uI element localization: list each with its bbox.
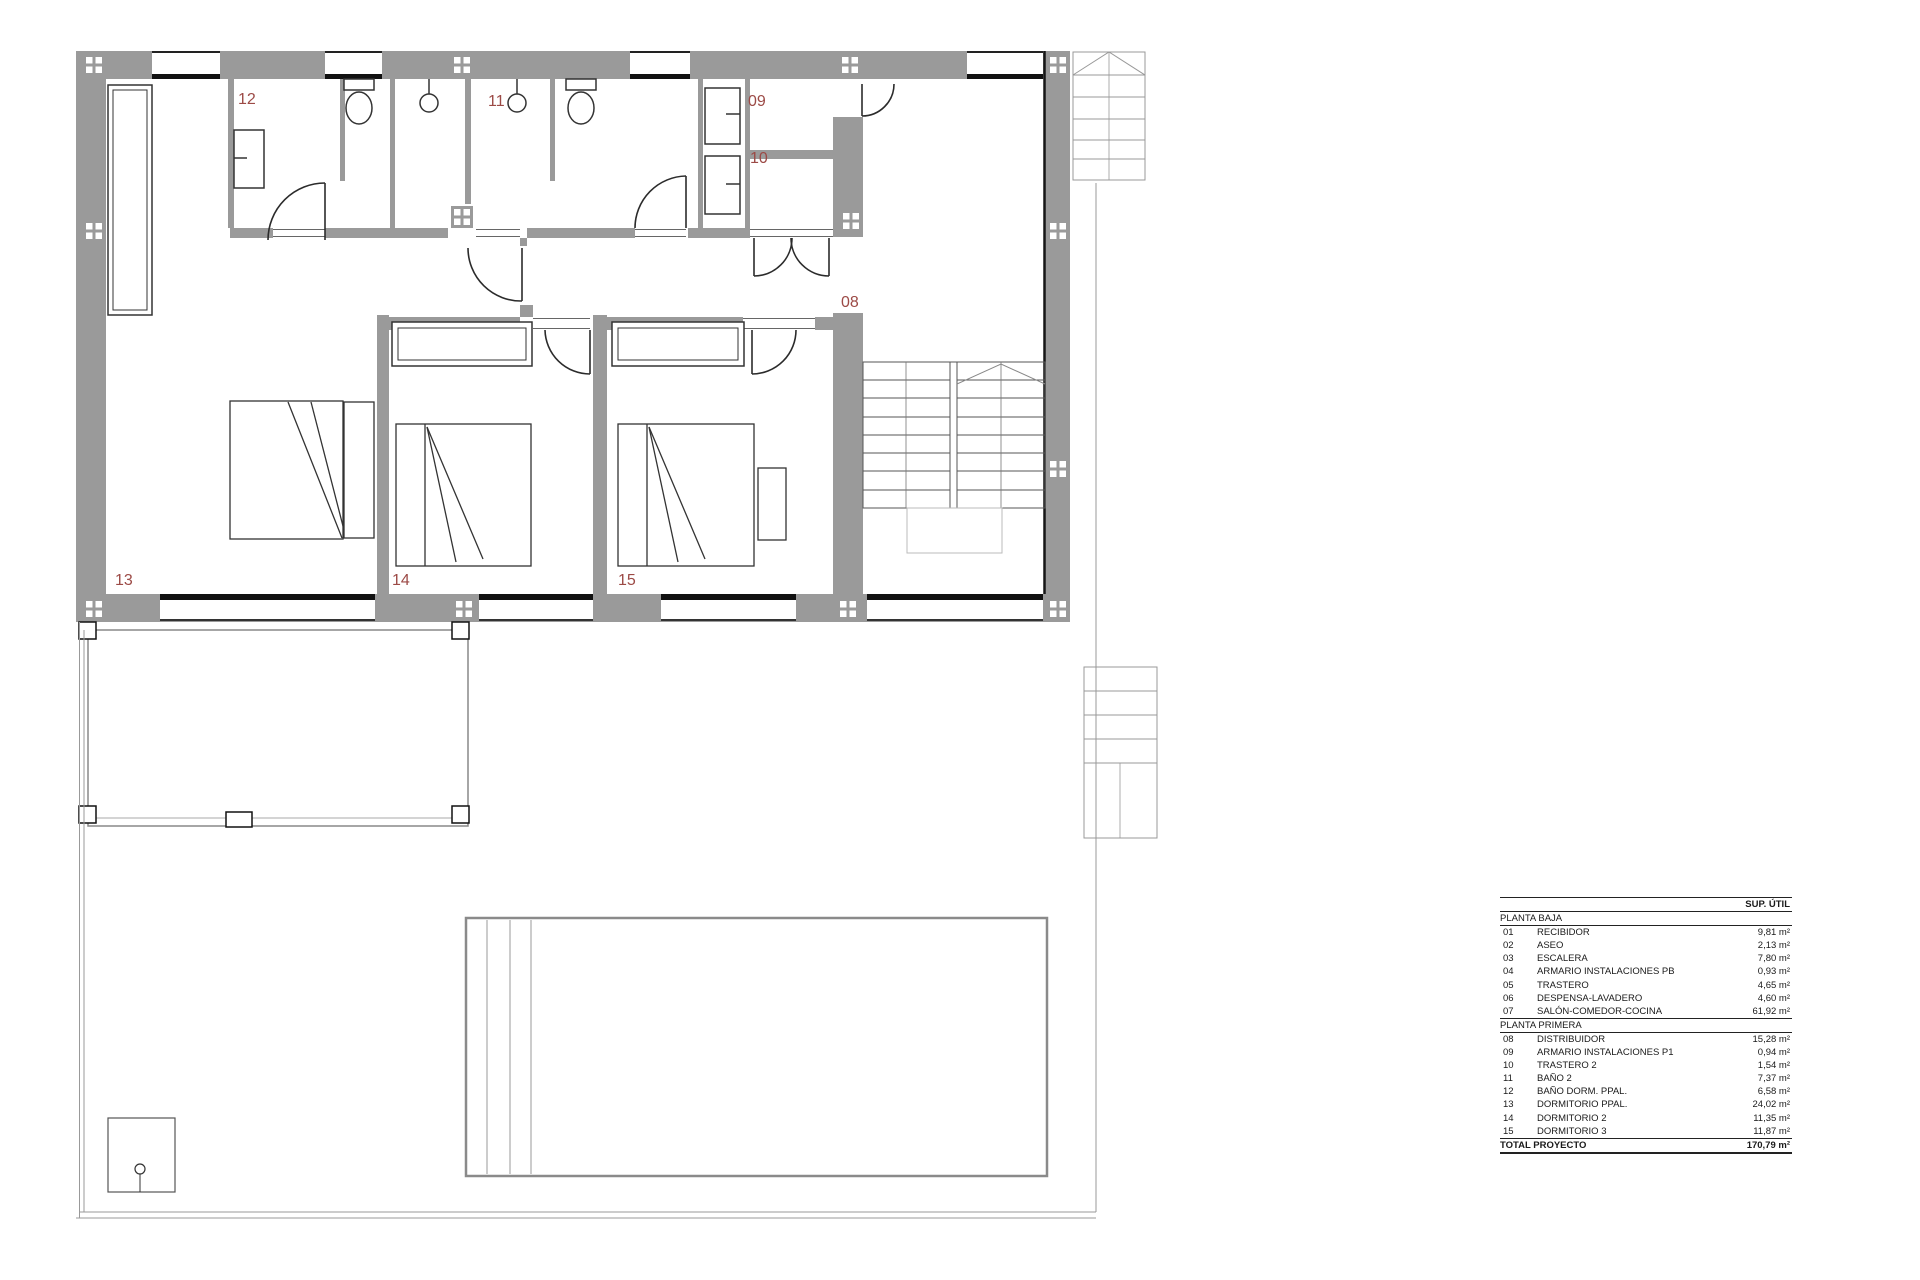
table-row: 15DORMITORIO 311,87 m² [1500,1125,1792,1138]
row-area: 24,02 m² [1728,1098,1792,1111]
bed-room-15 [618,424,786,566]
row-num: 11 [1500,1072,1537,1085]
door-bedroom-14 [545,330,590,374]
row-area: 0,93 m² [1728,965,1792,978]
row-name: DESPENSA-LAVADERO [1537,992,1728,1005]
row-name: ARMARIO INSTALACIONES P1 [1537,1046,1728,1059]
row-name: RECIBIDOR [1537,926,1728,939]
section-planta-primera: PLANTA PRIMERA [1500,1018,1792,1033]
wardrobes [108,85,744,366]
row-name: BAÑO DORM. PPAL. [1537,1085,1728,1098]
total-label: TOTAL PROYECTO [1500,1139,1728,1152]
row-name: SALÓN-COMEDOR-COCINA [1537,1005,1728,1018]
exterior-stair-right [1084,667,1157,838]
room-label-15: 15 [618,572,636,589]
table-total-row: TOTAL PROYECTO 170,79 m² [1500,1138,1792,1154]
row-area: 4,60 m² [1728,992,1792,1005]
row-name: DORMITORIO 2 [1537,1112,1728,1125]
section-title: PLANTA PRIMERA [1500,1019,1582,1032]
row-area: 6,58 m² [1728,1085,1792,1098]
row-name: ASEO [1537,939,1728,952]
row-num: 15 [1500,1125,1537,1138]
row-area: 61,92 m² [1728,1005,1792,1018]
row-area: 4,65 m² [1728,979,1792,992]
bathroom-fixtures [234,79,740,214]
outdoor-shower [108,1118,175,1192]
area-table: SUP. ÚTIL PLANTA BAJA 01RECIBIDOR9,81 m²… [1500,897,1792,1154]
section-planta-baja: PLANTA BAJA [1500,912,1792,926]
door-closet-09 [862,84,894,116]
toilet-icon [566,79,596,124]
row-name: DISTRIBUIDOR [1537,1033,1728,1046]
beds [230,401,786,566]
row-area: 2,13 m² [1728,939,1792,952]
bed-room-13 [230,401,374,539]
table-row: 05TRASTERO4,65 m² [1500,979,1792,992]
row-num: 08 [1500,1033,1537,1046]
door-bath-11 [635,176,686,228]
table-row: 06DESPENSA-LAVADERO4,60 m² [1500,992,1792,1005]
table-row: 04ARMARIO INSTALACIONES PB0,93 m² [1500,965,1792,978]
exterior-stair-top [1073,52,1145,180]
table-row: 07SALÓN-COMEDOR-COCINA61,92 m² [1500,1005,1792,1018]
room-label-11: 11 [488,93,505,110]
door-bedroom-15 [752,330,796,374]
room-label-09: 09 [748,93,766,110]
row-area: 15,28 m² [1728,1033,1792,1046]
table-row: 09ARMARIO INSTALACIONES P10,94 m² [1500,1046,1792,1059]
row-num: 10 [1500,1059,1537,1072]
row-area: 11,87 m² [1728,1125,1792,1138]
row-area: 7,80 m² [1728,952,1792,965]
row-num: 12 [1500,1085,1537,1098]
row-name: DORMITORIO 3 [1537,1125,1728,1138]
row-num: 01 [1500,926,1537,939]
table-row: 11BAÑO 27,37 m² [1500,1072,1792,1085]
row-num: 02 [1500,939,1537,952]
toilet-icon [344,79,374,124]
row-num: 09 [1500,1046,1537,1059]
table-row: 10TRASTERO 21,54 m² [1500,1059,1792,1072]
door-thresholds [273,230,833,329]
bed-room-14 [396,424,531,566]
row-name: TRASTERO [1537,979,1728,992]
bath-cabinet [234,130,264,188]
table-row: 01RECIBIDOR9,81 m² [1500,926,1792,939]
col-header: SUP. ÚTIL [1728,898,1792,911]
staircase [863,362,1045,553]
appliance [705,88,740,144]
row-area: 0,94 m² [1728,1046,1792,1059]
table-header-row: SUP. ÚTIL [1500,897,1792,912]
row-area: 7,37 m² [1728,1072,1792,1085]
row-name: TRASTERO 2 [1537,1059,1728,1072]
row-name: BAÑO 2 [1537,1072,1728,1085]
row-num: 13 [1500,1098,1537,1111]
room-label-10: 10 [750,150,768,167]
table-row: 12BAÑO DORM. PPAL.6,58 m² [1500,1085,1792,1098]
double-door-storage [754,238,829,276]
terrace [79,622,469,827]
row-num: 06 [1500,992,1537,1005]
table-row: 08DISTRIBUIDOR15,28 m² [1500,1033,1792,1046]
door-hall [468,248,522,301]
row-num: 03 [1500,952,1537,965]
row-num: 07 [1500,1005,1537,1018]
row-area: 9,81 m² [1728,926,1792,939]
room-label-08: 08 [841,294,859,311]
section-title: PLANTA BAJA [1500,912,1562,925]
row-name: ESCALERA [1537,952,1728,965]
row-area: 11,35 m² [1728,1112,1792,1125]
table-row: 14DORMITORIO 211,35 m² [1500,1112,1792,1125]
row-area: 1,54 m² [1728,1059,1792,1072]
row-num: 14 [1500,1112,1537,1125]
row-name: DORMITORIO PPAL. [1537,1098,1728,1111]
room-label-12: 12 [238,91,256,108]
exterior-walls [76,51,1070,622]
table-row: 02ASEO2,13 m² [1500,939,1792,952]
room-label-13: 13 [115,572,133,589]
appliance [705,156,740,214]
sink-icon [420,79,438,112]
plot-boundary [76,183,1096,1218]
row-num: 05 [1500,979,1537,992]
table-row: 13DORMITORIO PPAL.24,02 m² [1500,1098,1792,1111]
total-area: 170,79 m² [1728,1139,1792,1152]
pool [466,918,1047,1176]
sink-icon [508,79,526,112]
room-label-14: 14 [392,572,410,589]
row-name: ARMARIO INSTALACIONES PB [1537,965,1728,978]
row-num: 04 [1500,965,1537,978]
door-bath-12 [268,183,325,240]
table-row: 03ESCALERA7,80 m² [1500,952,1792,965]
